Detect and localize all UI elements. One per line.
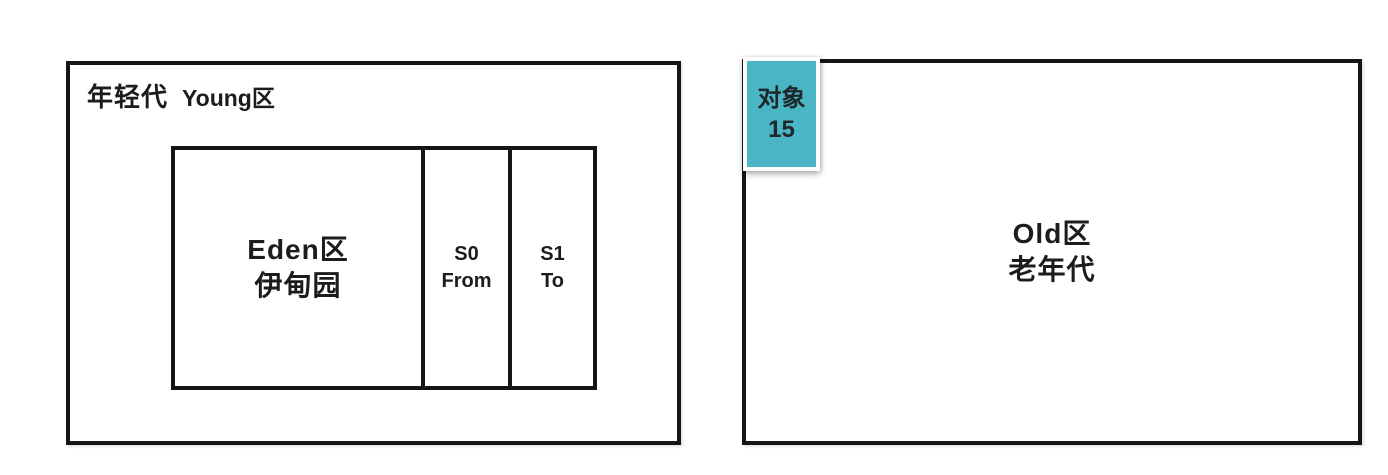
survivor0-label-line2: From xyxy=(442,268,492,295)
old-label-line2: 老年代 xyxy=(1008,252,1095,288)
survivor1-label-line1: S1 xyxy=(540,241,564,268)
eden-region: Eden区 伊甸园 xyxy=(175,150,421,386)
survivor0-label-line1: S0 xyxy=(454,241,478,268)
survivor1-label-line2: To xyxy=(541,268,564,295)
eden-label-line1: Eden区 xyxy=(247,232,348,268)
eden-label-line2: 伊甸园 xyxy=(254,268,341,304)
survivor1-region: S1 To xyxy=(508,150,593,386)
object-age-badge: 对象 15 xyxy=(743,57,820,171)
survivor0-region: S0 From xyxy=(421,150,508,386)
young-generation-box: 年轻代 Young区 Eden区 伊甸园 S0 From S1 To xyxy=(66,61,681,445)
eden-survivor-container: Eden区 伊甸园 S0 From S1 To xyxy=(171,146,597,390)
object-badge-line1: 对象 xyxy=(758,83,806,114)
young-title-english: Young区 xyxy=(182,79,275,113)
old-generation-label: Old区 老年代 xyxy=(746,63,1358,441)
young-generation-title: 年轻代 Young区 xyxy=(87,77,275,114)
jvm-heap-diagram: 年轻代 Young区 Eden区 伊甸园 S0 From S1 To Old区 … xyxy=(0,0,1388,475)
old-generation-box: Old区 老年代 xyxy=(742,59,1362,445)
object-badge-line2: 15 xyxy=(768,114,795,145)
young-title-chinese: 年轻代 xyxy=(87,77,168,114)
old-label-line1: Old区 xyxy=(1013,216,1092,252)
